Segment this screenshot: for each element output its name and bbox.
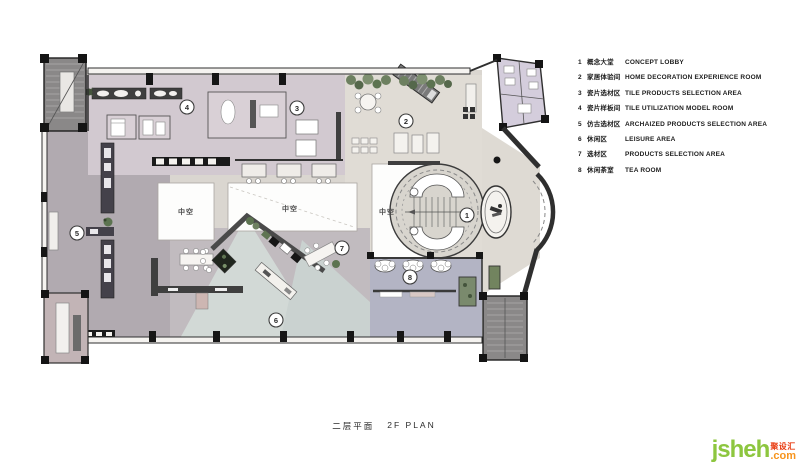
legend-item-en: LEISURE AREA [625,136,676,143]
plan-marker-8: 8 [403,270,417,284]
plan-marker-7: 7 [335,241,349,255]
svg-text:3: 3 [295,104,299,113]
legend-item-en: PRODUCTS SELECTION AREA [625,151,725,158]
legend: 1 概念大堂 CONCEPT LOBBY 2 家居体验间 HOME DECORA… [578,56,793,179]
watermark-name: jsheh [712,438,770,462]
legend-item-number: 3 [578,90,587,97]
watermark-logo: jsheh 聚设汇 .com [712,438,796,462]
void-label: 中空 [379,207,395,216]
restroom-block [493,54,549,131]
plan-title: 二层平面 2F PLAN [314,420,454,432]
legend-item-en: TILE UTILIZATION MODEL ROOM [625,105,733,112]
plan-marker-2: 2 [399,114,413,128]
legend-item-number: 4 [578,105,587,112]
legend-item-zh: 概念大堂 [587,56,625,66]
void-label: 中空 [282,204,298,213]
legend-item: 8 休闲茶室 TEA ROOM [578,164,793,179]
legend-item-zh: 休闲茶室 [587,164,625,174]
feature-oval [481,186,511,238]
floor-plan-page: 中空 中空 中空 1 2 3 4 5 [0,0,800,463]
legend-item-zh: 家居体验间 [587,71,625,81]
legend-item-number: 2 [578,74,587,81]
legend-item-en: ARCHAIZED PRODUCTS SELECTION AREA [625,121,767,128]
legend-item-number: 7 [578,151,587,158]
legend-item-zh: 瓷片样板间 [587,102,625,112]
svg-text:8: 8 [408,273,412,282]
legend-item: 3 瓷片选材区 TILE PRODUCTS SELECTION AREA [578,87,793,102]
stairwell-top-left [40,54,87,132]
legend-item: 1 概念大堂 CONCEPT LOBBY [578,56,793,71]
stairwell-bottom-right [479,292,528,362]
plan-marker-5: 5 [70,226,84,240]
legend-item: 2 家居体验间 HOME DECORATION EXPERIENCE ROOM [578,71,793,86]
plan-title-zh: 二层平面 [332,420,374,432]
legend-item: 4 瓷片样板间 TILE UTILIZATION MODEL ROOM [578,102,793,117]
legend-item: 5 仿古选材区 ARCHAIZED PRODUCTS SELECTION ARE… [578,118,793,133]
legend-item-en: HOME DECORATION EXPERIENCE ROOM [625,74,761,81]
legend-item: 7 选材区 PRODUCTS SELECTION AREA [578,148,793,163]
plan-marker-6: 6 [269,313,283,327]
legend-item-zh: 休闲区 [587,133,625,143]
watermark-tld: .com [770,451,796,462]
legend-item-zh: 仿古选材区 [587,118,625,128]
legend-item-en: CONCEPT LOBBY [625,59,684,66]
plan-marker-4: 4 [180,100,194,114]
legend-item-en: TEA ROOM [625,167,661,174]
watermark-stack: 聚设汇 .com [770,443,796,462]
void-label: 中空 [178,207,194,216]
legend-item-zh: 选材区 [587,148,625,158]
svg-text:2: 2 [404,117,408,126]
svg-text:5: 5 [75,229,79,238]
svg-text:7: 7 [340,244,344,253]
legend-item-number: 8 [578,167,587,174]
plan-marker-1: 1 [460,208,474,222]
legend-item-number: 5 [578,121,587,128]
plan-marker-3: 3 [290,101,304,115]
legend-item-zh: 瓷片选材区 [587,87,625,97]
plan-title-en: 2F PLAN [387,420,436,432]
svg-text:6: 6 [274,316,278,325]
balcony-room [41,290,89,364]
legend-item-en: TILE PRODUCTS SELECTION AREA [625,90,742,97]
legend-item-number: 1 [578,59,587,66]
svg-text:1: 1 [465,211,469,220]
legend-item: 6 休闲区 LEISURE AREA [578,133,793,148]
legend-item-number: 6 [578,136,587,143]
